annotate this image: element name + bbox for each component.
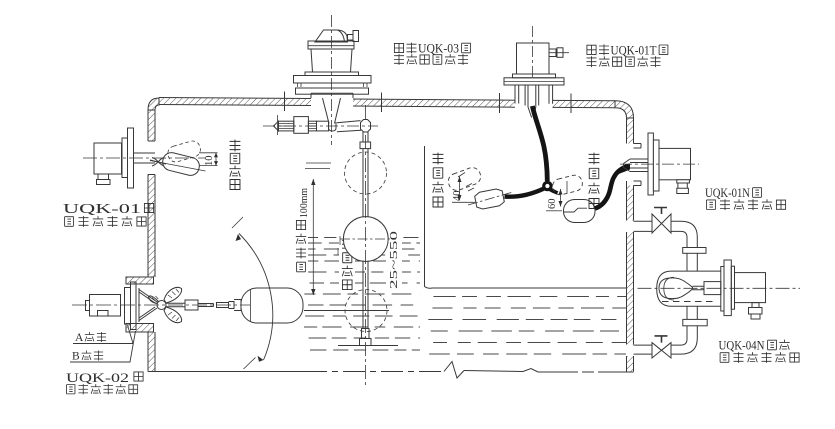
svg-text:100mm: 100mm [298, 188, 310, 218]
svg-text:B: B [72, 351, 80, 363]
svg-text:UQK-01N: UQK-01N [705, 186, 750, 200]
svg-text:UQK-01T: UQK-01T [611, 43, 657, 57]
svg-text:UQK-04N: UQK-04N [719, 339, 765, 353]
svg-text:10: 10 [204, 156, 215, 167]
svg-text:UQK-02: UQK-02 [66, 370, 129, 385]
svg-text:A: A [75, 332, 84, 344]
svg-text:40: 40 [452, 191, 463, 202]
svg-text:UQK-03: UQK-03 [418, 42, 459, 56]
svg-text:60: 60 [547, 199, 558, 210]
svg-text:UQK-01: UQK-01 [63, 201, 141, 216]
